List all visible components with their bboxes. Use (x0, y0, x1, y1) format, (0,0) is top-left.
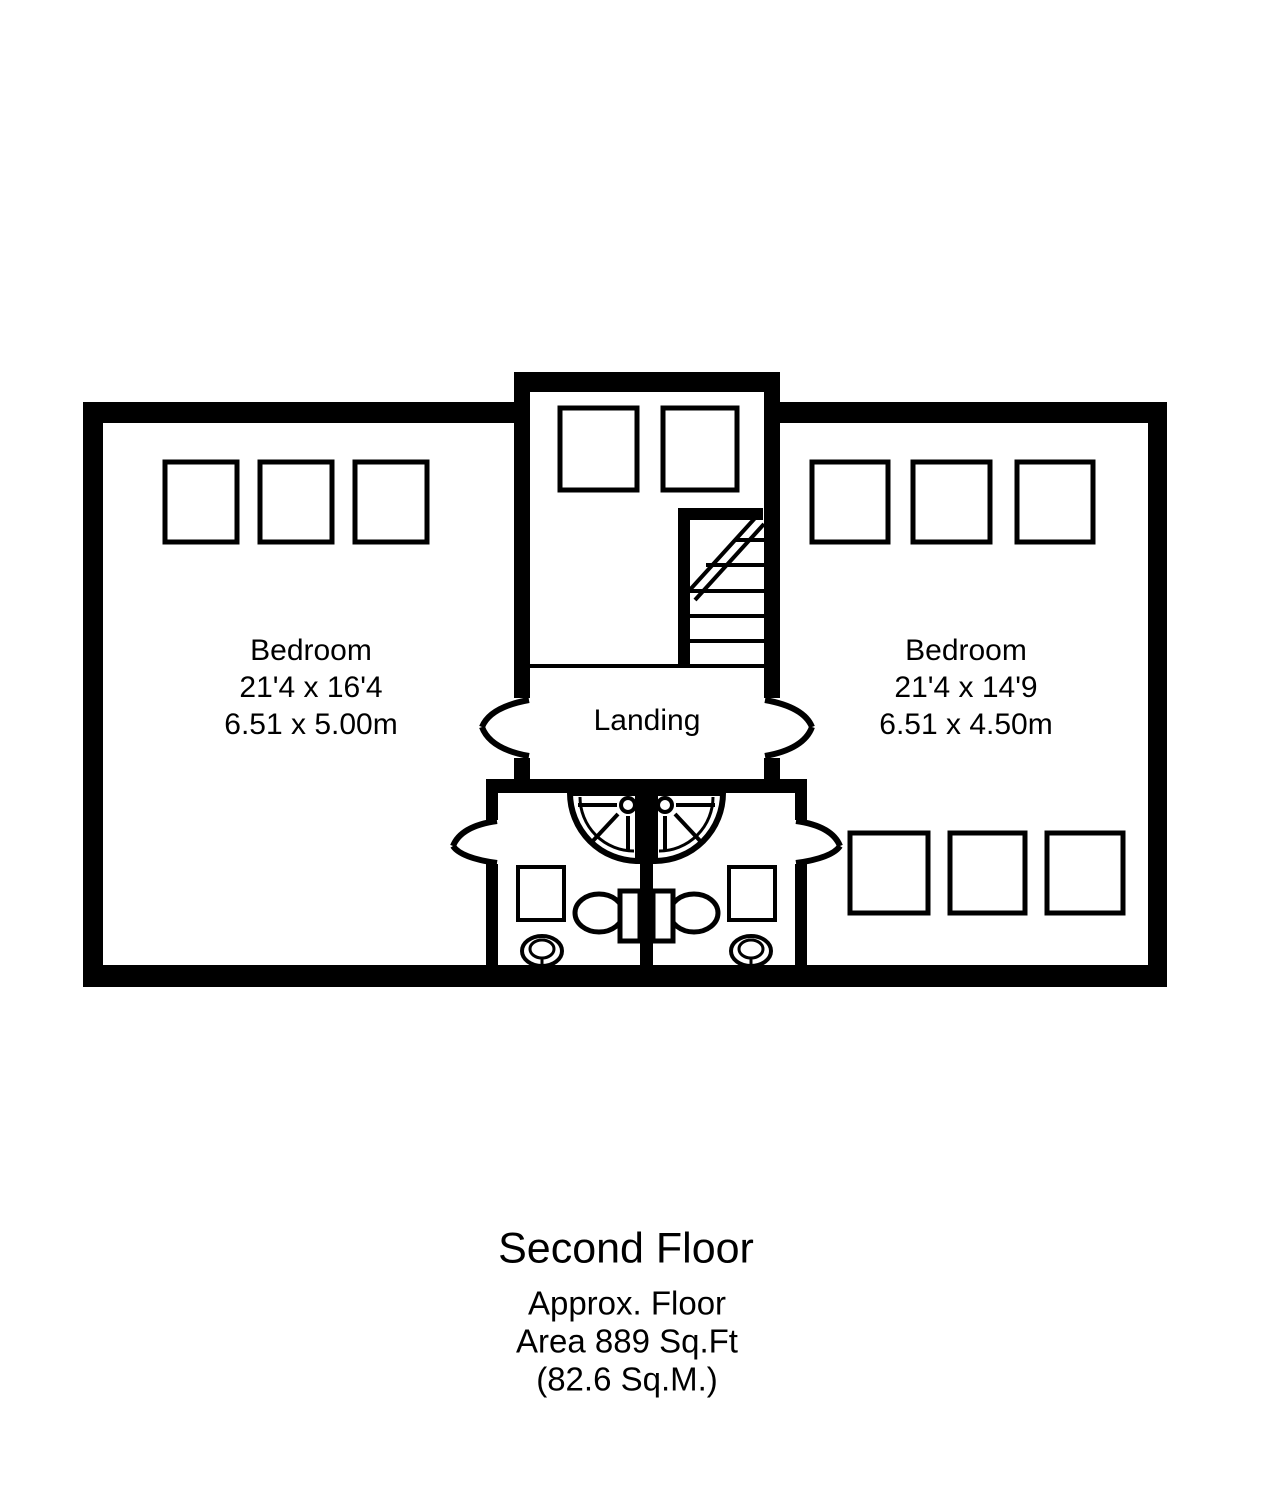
window-icon (812, 462, 888, 542)
wall-landing-left-upper (514, 372, 530, 698)
window-icon (165, 462, 237, 542)
shower-icon-left (570, 793, 638, 861)
bedroom-left-label: Bedroom (250, 636, 372, 666)
window-icon (260, 462, 332, 542)
stair-treads (530, 540, 764, 666)
window-icon (1017, 462, 1093, 542)
stair-direction-lines (687, 517, 764, 600)
wall-bottom (83, 965, 1167, 987)
wall-bathroom-right-upper (795, 793, 807, 820)
window-icon (729, 867, 775, 920)
basin-icon-left (522, 936, 562, 966)
toilet-icon-right (653, 891, 718, 941)
wall-bathroom-left-upper (486, 793, 498, 820)
basin-icon-right (731, 936, 771, 966)
window-icon (1047, 833, 1123, 913)
floorplan-drawing (0, 0, 1264, 1501)
bedroom-left-dims-imperial: 21'4 x 16'4 (239, 673, 382, 703)
window-icon (913, 462, 990, 542)
bedroom-left-dims-metric: 6.51 x 5.00m (224, 710, 397, 740)
door-opening-icon-landing-right (765, 700, 812, 756)
area-caption-line2: Area 889 Sq.Ft (516, 1325, 738, 1358)
window-icon (355, 462, 427, 542)
staircase (530, 508, 764, 668)
wall-top-left (83, 402, 514, 423)
door-opening-icon-landing-left (482, 700, 529, 756)
toilet-icon-left (575, 891, 640, 941)
wall-bathroom-left-lower (486, 864, 498, 965)
window-icon (663, 408, 737, 490)
bedroom-right-label: Bedroom (905, 636, 1027, 666)
window-icon (950, 833, 1025, 913)
door-opening-icon-bathroom-left (453, 821, 497, 863)
wall-bathroom-right-lower (795, 864, 807, 965)
stair-wall-top (678, 508, 763, 520)
floorplan-page: Bedroom 21'4 x 16'4 6.51 x 5.00m Bedroom… (0, 0, 1264, 1501)
wall-top-right (780, 402, 1148, 423)
wall-landing-right-upper (764, 372, 780, 698)
wall-left (83, 402, 103, 987)
stair-wall-left (678, 508, 690, 668)
floor-title: Second Floor (498, 1228, 754, 1271)
window-icon (560, 408, 637, 490)
door-opening-icon-bathroom-right (796, 821, 840, 863)
bedroom-right-dims-imperial: 21'4 x 14'9 (894, 673, 1037, 703)
window-icon (518, 867, 564, 920)
wall-center-top (514, 372, 780, 392)
area-caption-line3: (82.6 Sq.M.) (536, 1363, 718, 1396)
window-icon (850, 833, 928, 913)
landing-label: Landing (594, 706, 701, 736)
shower-icon-right (655, 793, 723, 861)
wall-right (1148, 402, 1167, 987)
area-caption-line1: Approx. Floor (528, 1287, 726, 1320)
bedroom-right-dims-metric: 6.51 x 4.50m (879, 710, 1052, 740)
